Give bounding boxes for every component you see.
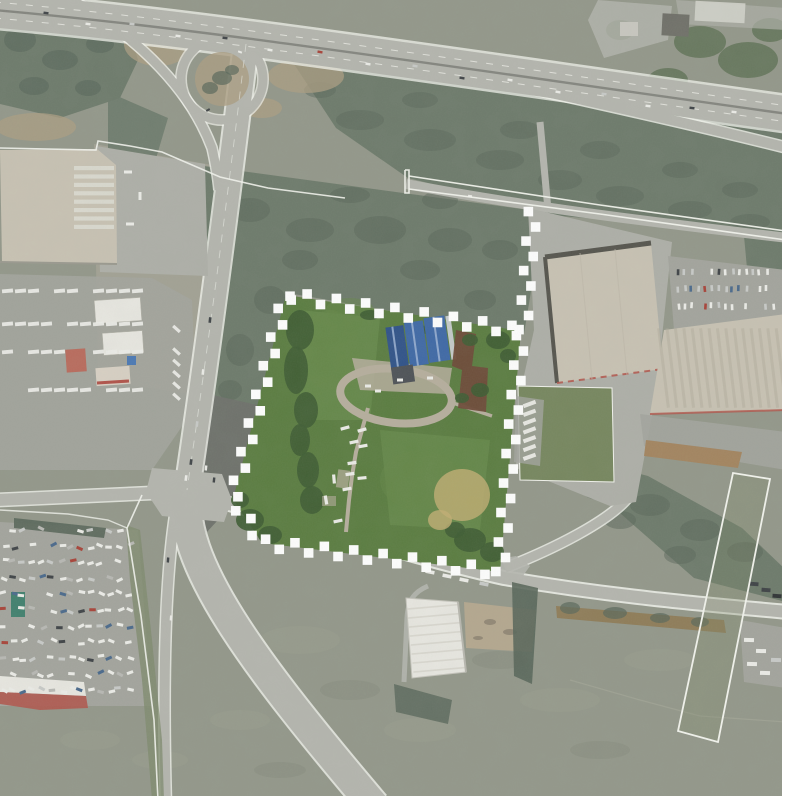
aerial-map (0, 0, 786, 800)
scene-layers (0, 0, 786, 800)
bottom-margin (0, 796, 786, 800)
photo-grain-overlay (0, 0, 786, 800)
right-margin (782, 0, 786, 800)
aerial-screenshot (0, 0, 786, 800)
